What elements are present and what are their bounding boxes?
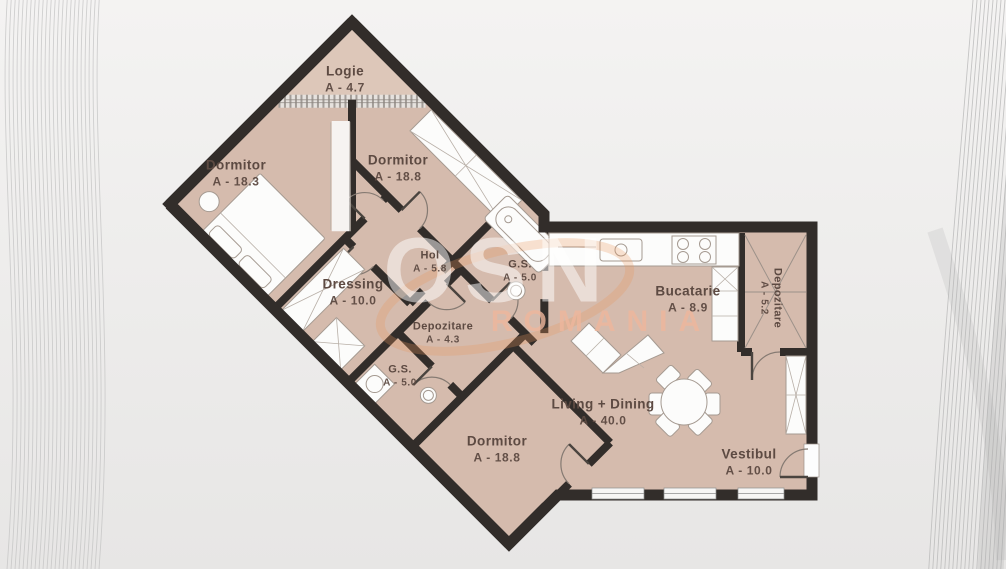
floor-plan-image: OSN ROMANIA Logie A - 4.7 Dormitor A - 1…: [0, 0, 1006, 569]
fridge-unit: [712, 267, 738, 341]
hall-wardrobe: [786, 356, 806, 434]
floor-plan-svg: [0, 0, 1006, 569]
window: [592, 488, 784, 499]
decorative-waves-left: [5, 0, 105, 569]
decorative-waves-right: [928, 0, 1006, 569]
